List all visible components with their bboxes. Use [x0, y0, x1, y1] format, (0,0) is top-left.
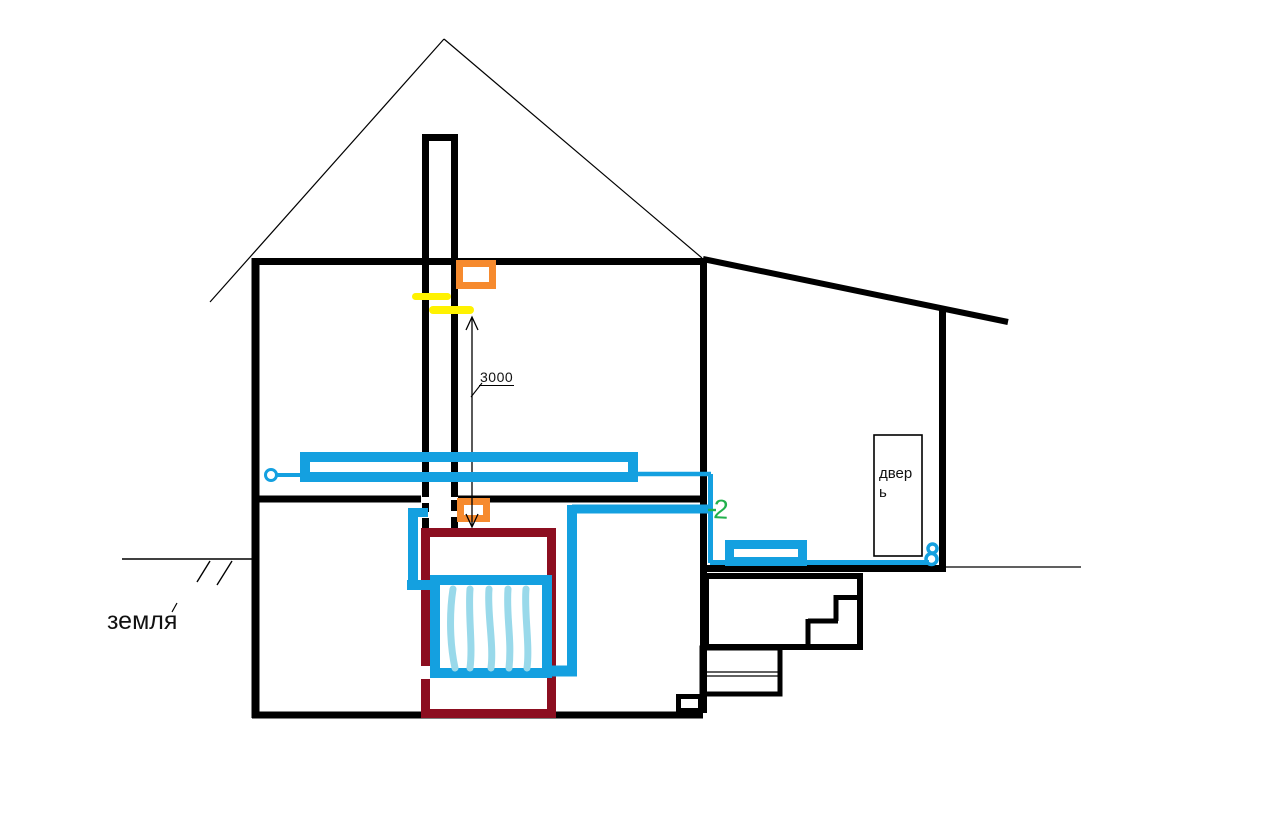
heating-pipes — [266, 457, 938, 673]
loop-inlet-valve — [266, 470, 277, 481]
flue-box-upper — [460, 264, 493, 286]
chimney — [422, 134, 458, 528]
pump-symbol-bottom-circle — [926, 554, 937, 565]
annex-roof — [703, 259, 1008, 322]
drawing-canvas: 3000 2 земля дв — [0, 0, 1268, 816]
ground-hatch-2 — [217, 561, 232, 585]
door-label-line2: ь — [879, 484, 887, 501]
annex — [703, 259, 1081, 571]
house-heating-diagram: 3000 2 земля дв — [0, 0, 1268, 816]
ground-left — [122, 559, 252, 612]
ground-label: земля — [107, 607, 177, 635]
pump-symbol-top-circle — [928, 544, 937, 553]
exchanger-fin-4 — [508, 589, 510, 668]
annex-radiator — [730, 545, 803, 562]
junction-number: 2 — [713, 494, 730, 525]
ground-hatch-1 — [197, 561, 210, 582]
furnace-left-gap — [419, 666, 431, 679]
steps-small-box — [679, 697, 701, 711]
exchanger-fin-5 — [526, 589, 528, 668]
yellow-mark-lower — [429, 306, 474, 314]
dimension-label: 3000 — [480, 369, 513, 385]
yellow-mark-upper — [412, 293, 451, 300]
exchanger-fin-2 — [470, 589, 471, 668]
roof-line-right — [444, 39, 702, 258]
flue-box-lower — [461, 502, 487, 519]
floor-loop-radiator — [305, 457, 633, 477]
exchanger-fin-3 — [489, 589, 492, 668]
steps-lower-box — [702, 648, 780, 694]
door-label-line1: двер — [879, 465, 912, 482]
yellow-marks — [412, 293, 474, 314]
